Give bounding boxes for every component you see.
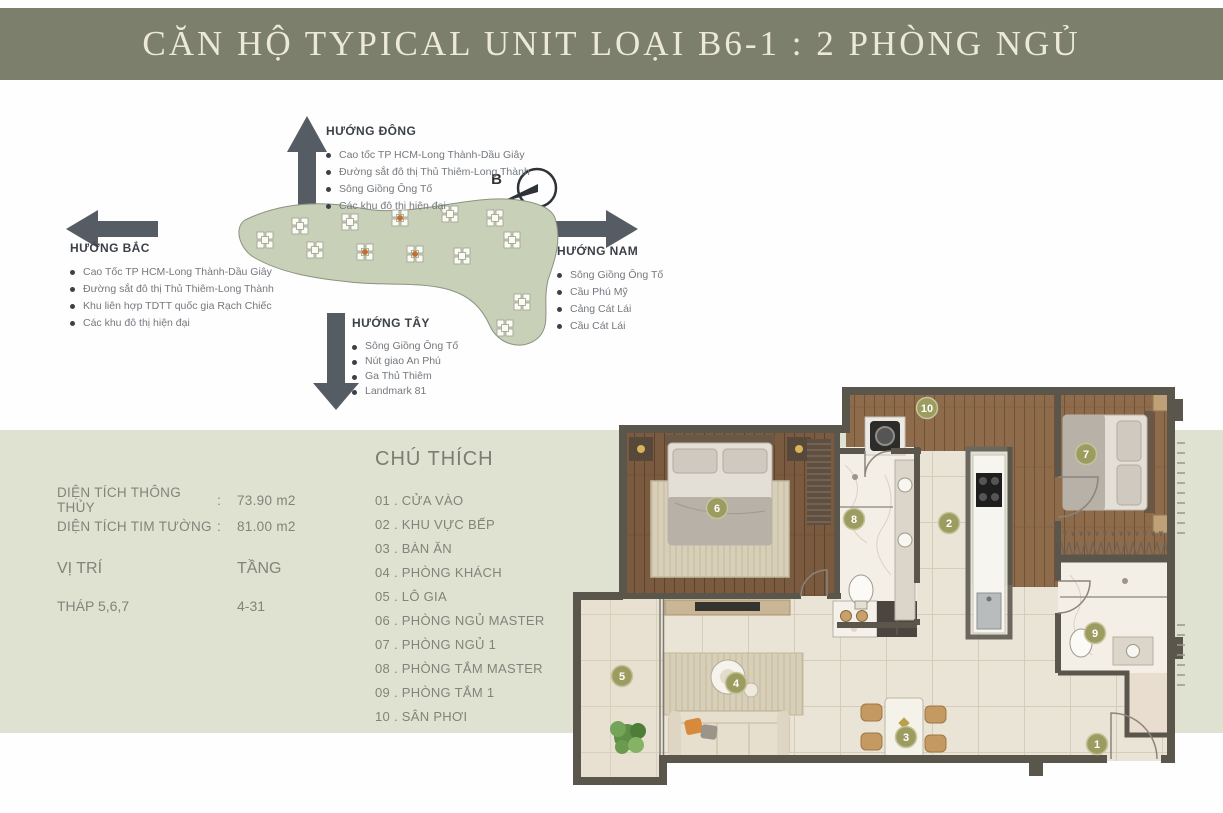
direction-south-item: Cảng Cát Lái xyxy=(557,301,663,318)
sofa xyxy=(669,711,789,759)
position-header-row: VỊ TRÍ TẦNG xyxy=(57,560,281,578)
marker-bath-1: 9 xyxy=(1085,623,1106,644)
svg-text:8: 8 xyxy=(851,514,857,526)
direction-north-item: Cao Tốc TP HCM-Long Thành-Dầu Giây xyxy=(70,264,274,281)
direction-north-item: Đường sắt đô thị Thủ Thiêm-Long Thành xyxy=(70,281,274,298)
position-value-row: THÁP 5,6,7 4-31 xyxy=(57,598,265,614)
direction-west-item: Landmark 81 xyxy=(352,384,458,399)
svg-text:10: 10 xyxy=(921,403,933,415)
area-info-panel: DIỆN TÍCH THÔNG THỦY : 73.90 m2 DIỆN TÍC… xyxy=(57,487,296,539)
direction-north-title: HƯỚNG BẮC xyxy=(70,241,274,255)
wardrobe xyxy=(1060,531,1169,555)
marker-bedroom-1: 7 xyxy=(1076,444,1097,465)
marker-living: 4 xyxy=(726,673,747,694)
direction-west: HƯỚNG TÂY Sông Giồng Ông Tố Nút giao An … xyxy=(352,316,458,399)
marker-master-bedroom: 6 xyxy=(707,498,728,519)
direction-north-item: Các khu đô thị hiện đại xyxy=(70,315,274,332)
brochure-page: CĂN HỘ TYPICAL UNIT LOẠI B6-1 : 2 PHÒNG … xyxy=(0,0,1223,813)
legend-item: 08 . PHÒNG TẮM MASTER xyxy=(375,657,545,681)
marker-master-bath: 8 xyxy=(844,509,865,530)
direction-south-title: HƯỚNG NAM xyxy=(557,244,663,258)
svg-text:2: 2 xyxy=(946,518,952,530)
marker-laundry: 10 xyxy=(917,398,938,419)
legend-item: 10 . SÂN PHƠI xyxy=(375,705,545,729)
svg-text:9: 9 xyxy=(1092,628,1098,640)
direction-south-item: Cầu Cát Lái xyxy=(557,318,663,335)
direction-east-item: Các khu đô thị hiện đại xyxy=(326,198,530,215)
legend-item: 04 . PHÒNG KHÁCH xyxy=(375,561,545,585)
legend-item: 01 . CỬA VÀO xyxy=(375,489,545,513)
south-arrow-icon xyxy=(555,210,638,248)
legend-item: 02 . KHU VỰC BẾP xyxy=(375,513,545,537)
direction-west-item: Ga Thủ Thiêm xyxy=(352,369,458,384)
area-value: 73.90 m2 xyxy=(237,493,296,508)
area-row: DIỆN TÍCH THÔNG THỦY : 73.90 m2 xyxy=(57,487,296,513)
area-row: DIỆN TÍCH TIM TƯỜNG : 81.00 m2 xyxy=(57,513,296,539)
floor-label: TẦNG xyxy=(237,560,281,578)
area-label: DIỆN TÍCH TIM TƯỜNG xyxy=(57,519,217,534)
floor-value: 4-31 xyxy=(237,598,265,614)
position-label: VỊ TRÍ xyxy=(57,560,237,578)
floor-plan: 1 2 3 4 5 6 7 8 9 10 xyxy=(565,385,1215,795)
direction-east-title: HƯỚNG ĐÔNG xyxy=(326,124,530,138)
direction-south-item: Cầu Phú Mỹ xyxy=(557,284,663,301)
tv xyxy=(695,602,760,611)
marker-entrance: 1 xyxy=(1087,734,1108,755)
direction-west-title: HƯỚNG TÂY xyxy=(352,316,458,330)
direction-north: HƯỚNG BẮC Cao Tốc TP HCM-Long Thành-Dầu … xyxy=(70,241,274,332)
svg-text:3: 3 xyxy=(903,732,909,744)
master-wardrobe xyxy=(807,439,831,525)
svg-text:5: 5 xyxy=(619,671,625,683)
direction-west-item: Nút giao An Phú xyxy=(352,354,458,369)
position-value: THÁP 5,6,7 xyxy=(57,598,237,614)
legend-item: 05 . LÔ GIA xyxy=(375,585,545,609)
legend-item: 03 . BÀN ĂN xyxy=(375,537,545,561)
colon: : xyxy=(217,519,237,534)
direction-north-item: Khu liên hợp TDTT quốc gia Rạch Chiếc xyxy=(70,298,274,315)
svg-text:7: 7 xyxy=(1083,449,1089,461)
highlight-tower xyxy=(362,249,368,255)
area-value: 81.00 m2 xyxy=(237,519,296,534)
marker-kitchen: 2 xyxy=(939,513,960,534)
direction-east-item: Cao tốc TP HCM-Long Thành-Dầu Giây xyxy=(326,147,530,164)
legend-item: 09 . PHÒNG TẮM 1 xyxy=(375,681,545,705)
legend-item: 06 . PHÒNG NGỦ MASTER xyxy=(375,609,545,633)
area-label: DIỆN TÍCH THÔNG THỦY xyxy=(57,485,217,515)
colon: : xyxy=(217,493,237,508)
legend-title: CHÚ THÍCH xyxy=(375,448,545,471)
marker-loggia: 5 xyxy=(612,666,633,687)
page-title: CĂN HỘ TYPICAL UNIT LOẠI B6-1 : 2 PHÒNG … xyxy=(142,24,1080,64)
direction-east-item: Sông Giồng Ông Tố xyxy=(326,181,530,198)
svg-text:6: 6 xyxy=(714,503,720,515)
direction-east-item: Đường sắt đô thị Thủ Thiêm-Long Thành xyxy=(326,164,530,181)
loggia-plant xyxy=(610,721,646,754)
highlight-tower xyxy=(397,215,403,221)
legend-item: 07 . PHÒNG NGỦ 1 xyxy=(375,633,545,657)
direction-south: HƯỚNG NAM Sông Giồng Ông Tố Cầu Phú Mỹ C… xyxy=(557,244,663,335)
title-banner: CĂN HỘ TYPICAL UNIT LOẠI B6-1 : 2 PHÒNG … xyxy=(0,8,1223,80)
svg-text:1: 1 xyxy=(1094,739,1100,751)
legend-panel: CHÚ THÍCH 01 . CỬA VÀO 02 . KHU VỰC BẾP … xyxy=(375,448,545,729)
marker-dining: 3 xyxy=(896,727,917,748)
direction-east: HƯỚNG ĐÔNG Cao tốc TP HCM-Long Thành-Dầu… xyxy=(326,124,530,215)
direction-south-item: Sông Giồng Ông Tố xyxy=(557,267,663,284)
svg-text:4: 4 xyxy=(733,678,740,690)
highlight-tower xyxy=(412,251,418,257)
direction-west-item: Sông Giồng Ông Tố xyxy=(352,339,458,354)
cooktop xyxy=(976,473,1002,507)
